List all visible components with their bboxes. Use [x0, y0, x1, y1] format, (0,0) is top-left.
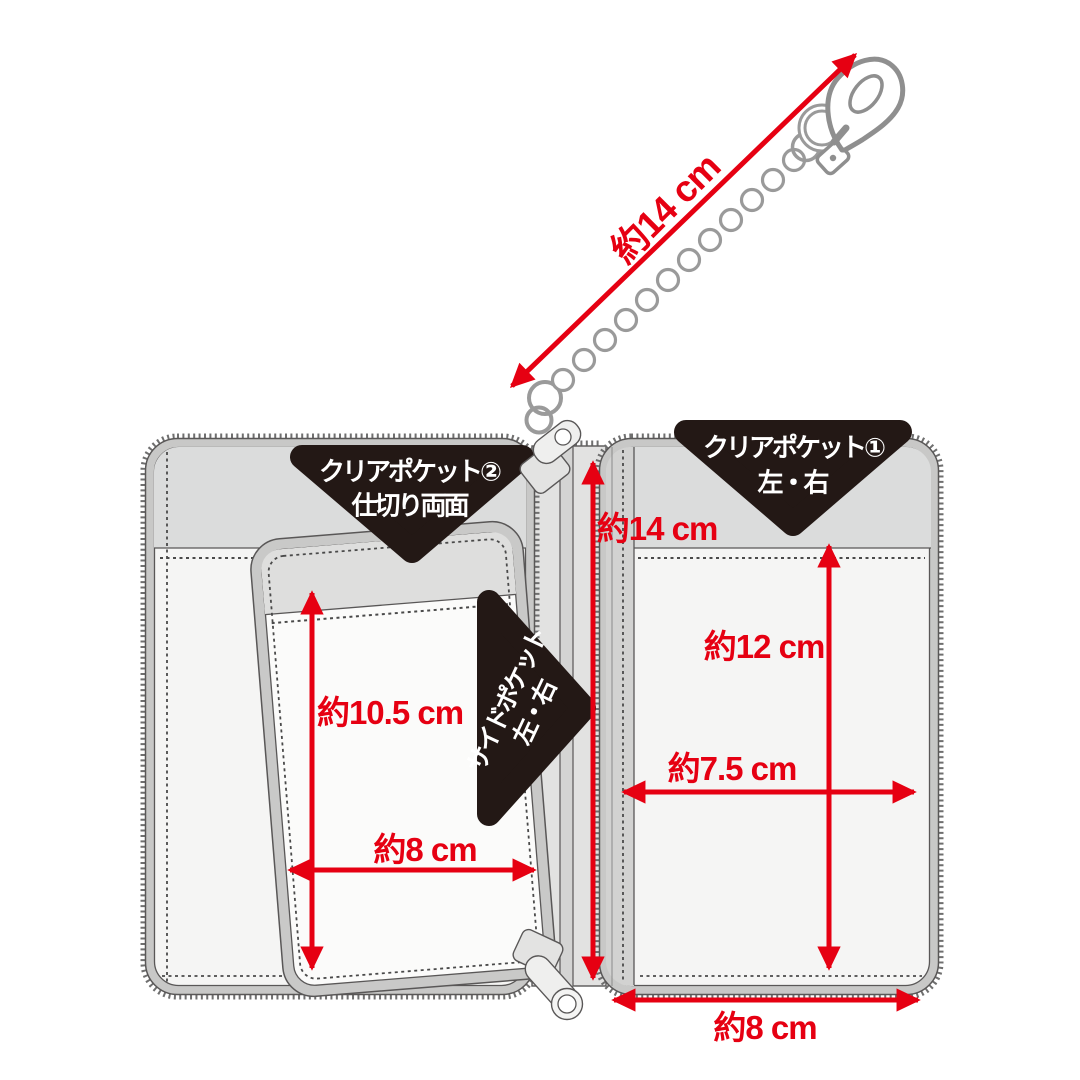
diagram-canvas: 約14 cm 約14 cm 約12 cm 約7.5 cm 約10.5 cm 約8…: [0, 0, 1080, 1080]
label-pocket2-height: 約10.5 cm: [317, 686, 463, 734]
label-pocket1-height: 約12 cm: [704, 620, 825, 668]
label-body-height: 約14 cm: [597, 502, 718, 550]
pouch-illustration: [0, 0, 1080, 1080]
badge-clear-pocket2-line1: クリアポケット②: [319, 452, 499, 489]
label-body-width: 約8 cm: [713, 1001, 816, 1049]
clasp-icon: [815, 59, 902, 175]
badge-clear-pocket2-line2: 仕切り両面: [351, 486, 466, 523]
label-pocket1-width: 約7.5 cm: [668, 742, 797, 790]
label-pocket2-width: 約8 cm: [373, 823, 476, 871]
badge-clear-pocket1-line1: クリアポケット①: [703, 428, 883, 465]
badge-clear-pocket1-line2: 左・右: [757, 463, 826, 500]
